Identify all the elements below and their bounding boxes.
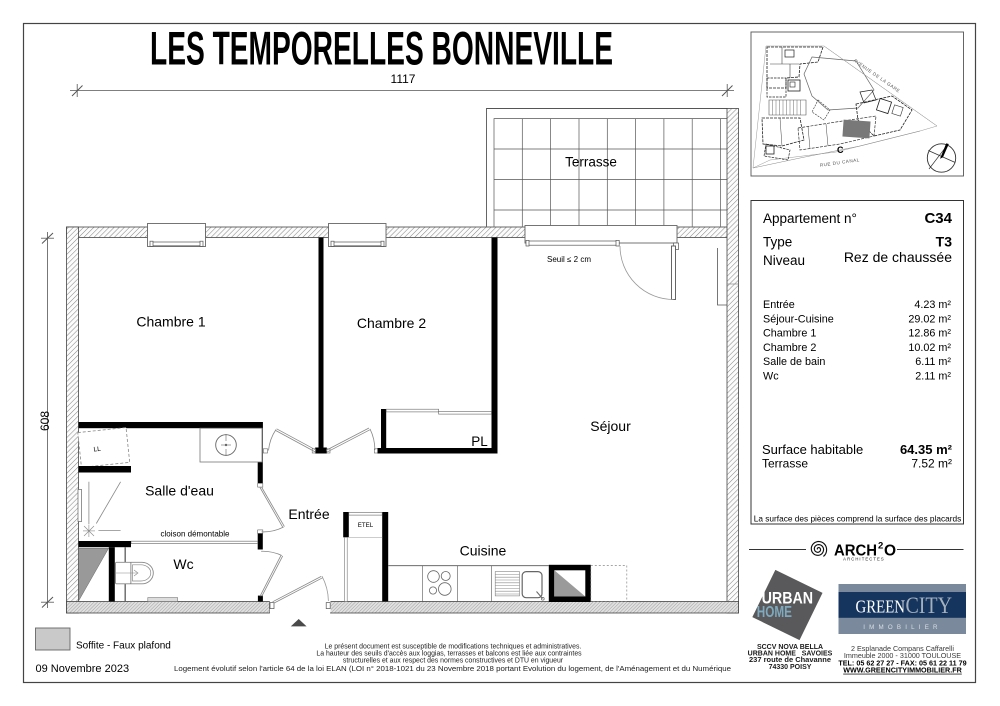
svg-text:O: O	[884, 543, 896, 560]
svg-text:Type: Type	[763, 235, 792, 250]
svg-text:GREEN: GREEN	[856, 597, 906, 617]
svg-text:Entrée: Entrée	[763, 299, 795, 311]
svg-text:Salle d'eau: Salle d'eau	[145, 483, 214, 499]
svg-text:T3: T3	[936, 234, 953, 250]
svg-text:Entrée: Entrée	[288, 506, 329, 522]
svg-text:Terrasse: Terrasse	[762, 457, 808, 471]
svg-text:Cuisine: Cuisine	[460, 543, 507, 559]
svg-text:Wc: Wc	[763, 371, 779, 383]
svg-text:Chambre 2: Chambre 2	[763, 342, 816, 354]
svg-text:7.52 m²: 7.52 m²	[911, 457, 952, 471]
svg-text:608: 608	[38, 411, 52, 431]
svg-text:Appartement n°: Appartement n°	[763, 211, 857, 226]
svg-text:Wc: Wc	[173, 556, 193, 572]
svg-text:CITY: CITY	[906, 593, 953, 619]
svg-text:10.02 m²: 10.02 m²	[908, 342, 951, 354]
svg-text:Salle de bain: Salle de bain	[763, 356, 825, 368]
svg-text:64.35 m²: 64.35 m²	[900, 442, 953, 457]
svg-text:LES TEMPORELLES BONNEVILLE: LES TEMPORELLES BONNEVILLE	[150, 22, 613, 75]
svg-text:Chambre 1: Chambre 1	[763, 328, 816, 340]
svg-text:IMMOBILIER: IMMOBILIER	[863, 624, 941, 631]
svg-text:cloison démontable: cloison démontable	[161, 530, 230, 539]
svg-text:4.23 m²: 4.23 m²	[914, 299, 951, 311]
svg-text:Niveau: Niveau	[763, 253, 805, 268]
svg-text:Soffite - Faux plafond: Soffite - Faux plafond	[76, 641, 171, 652]
svg-text:LL: LL	[93, 446, 101, 454]
svg-text:C: C	[837, 145, 844, 155]
svg-text:Chambre 2: Chambre 2	[357, 315, 426, 331]
svg-text:ETEL: ETEL	[358, 522, 374, 529]
svg-text:2.11 m²: 2.11 m²	[915, 371, 951, 383]
svg-text:Seuil ≤ 2 cm: Seuil ≤ 2 cm	[547, 255, 591, 264]
svg-text:ARCHITECTES: ARCHITECTES	[843, 557, 885, 562]
svg-text:Le présent document est suscep: Le présent document est susceptible de m…	[325, 644, 582, 651]
svg-text:Chambre 1: Chambre 1	[136, 314, 205, 330]
svg-text:29.02 m²: 29.02 m²	[908, 313, 951, 325]
svg-text:74330 POISY: 74330 POISY	[769, 664, 812, 671]
svg-text:La surface des pièces comprend: La surface des pièces comprend la surfac…	[754, 514, 962, 524]
svg-text:Surface habitable: Surface habitable	[762, 442, 863, 457]
svg-text:12.86 m²: 12.86 m²	[908, 328, 951, 340]
svg-text:Séjour: Séjour	[590, 418, 631, 434]
svg-text:Rez de chaussée: Rez de chaussée	[844, 249, 952, 265]
svg-text:HOME: HOME	[757, 604, 792, 621]
svg-text:2: 2	[878, 541, 883, 552]
svg-text:09 Novembre 2023: 09 Novembre 2023	[36, 663, 130, 675]
svg-text:Terrasse: Terrasse	[565, 155, 617, 170]
svg-text:6.11 m²: 6.11 m²	[915, 356, 951, 368]
svg-text:WWW.GREENCITYIMMOBILIER.FR: WWW.GREENCITYIMMOBILIER.FR	[843, 666, 962, 675]
svg-text:C34: C34	[924, 210, 952, 227]
svg-text:Logement évolutif selon l'arti: Logement évolutif selon l'article 64 de …	[174, 664, 731, 673]
svg-text:1117: 1117	[391, 72, 416, 86]
svg-text:PL: PL	[471, 434, 488, 449]
svg-text:Séjour-Cuisine: Séjour-Cuisine	[763, 313, 834, 325]
